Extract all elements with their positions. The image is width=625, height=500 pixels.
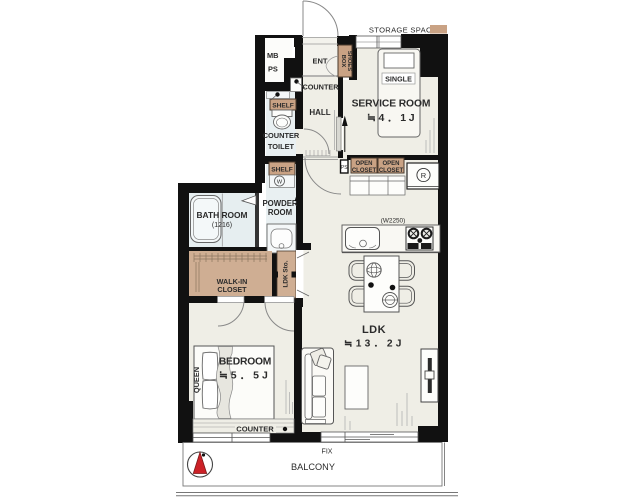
svg-text:STORAGE SPACE: STORAGE SPACE — [369, 26, 437, 35]
svg-text:LDK Sto.: LDK Sto. — [283, 260, 290, 287]
svg-text:OPEN: OPEN — [355, 161, 372, 167]
svg-text:BEDROOM: BEDROOM — [219, 357, 271, 368]
svg-text:(1216): (1216) — [212, 222, 232, 229]
svg-text:CLOSET: CLOSET — [217, 285, 247, 294]
svg-text:SHELF: SHELF — [272, 102, 294, 109]
svg-text:BALCONY: BALCONY — [291, 462, 335, 472]
svg-text:POWDER: POWDER — [262, 199, 297, 208]
svg-text:SERVICE ROOM: SERVICE ROOM — [352, 99, 431, 110]
svg-text:BATH ROOM: BATH ROOM — [196, 210, 247, 220]
svg-text:QUEEN: QUEEN — [192, 367, 201, 393]
svg-text:PS: PS — [341, 165, 348, 171]
svg-text:≒13．2J: ≒13．2J — [344, 339, 405, 350]
svg-text:≒5．5J: ≒5．5J — [219, 370, 271, 382]
svg-text:BOX: BOX — [340, 55, 346, 68]
svg-text:FIX: FIX — [322, 449, 333, 456]
svg-text:ROOM: ROOM — [268, 208, 292, 217]
svg-text:COUNTER: COUNTER — [236, 425, 274, 434]
svg-text:COUNTER: COUNTER — [263, 131, 300, 140]
svg-text:ENT: ENT — [313, 57, 328, 66]
svg-text:W: W — [277, 180, 283, 186]
svg-text:SINGLE: SINGLE — [385, 74, 412, 83]
svg-text:LDK: LDK — [362, 324, 386, 336]
svg-text:CLOSET: CLOSET — [352, 168, 377, 174]
svg-text:R: R — [421, 171, 427, 180]
svg-text:CLOSET: CLOSET — [379, 168, 404, 174]
svg-text:MB: MB — [267, 51, 279, 60]
svg-text:≒4．1J: ≒4．1J — [367, 112, 417, 124]
svg-text:(W2250): (W2250) — [381, 218, 406, 225]
svg-text:COUNTER: COUNTER — [302, 83, 339, 92]
svg-text:HALL: HALL — [309, 108, 330, 117]
svg-text:OPEN: OPEN — [382, 161, 399, 167]
svg-text:TOILET: TOILET — [268, 142, 295, 151]
svg-text:SHELF: SHELF — [271, 167, 293, 174]
svg-text:PS: PS — [268, 65, 278, 74]
